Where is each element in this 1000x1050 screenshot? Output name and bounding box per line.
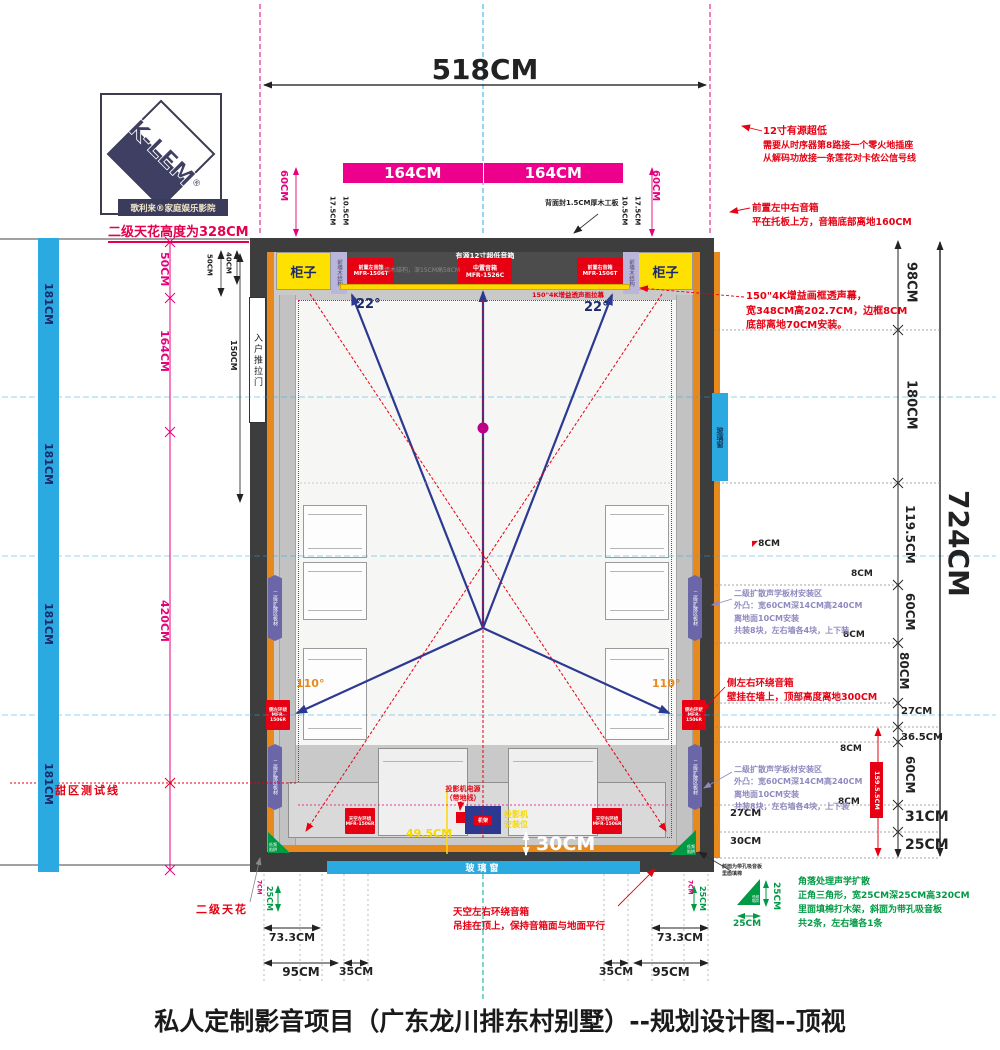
dim-95-right: 95CM xyxy=(634,966,708,979)
diffuser-lower-line-4: 共装8块，左右墙各4块，上下装 xyxy=(734,801,862,813)
dim-518: 518CM xyxy=(380,55,590,86)
speaker-center-model: MFR-1526C xyxy=(458,272,512,279)
projector-power-line-1: 投影机电源 xyxy=(428,785,498,794)
front-speaker-annotation-line-2: 平在托板上方，音箱底部离地160CM xyxy=(752,216,912,230)
ceiling-height-note: 二级天花高度为328CM xyxy=(108,226,249,243)
projector-power-note: 投影机电源 （带地线） xyxy=(428,785,498,803)
side-unit-left-3 xyxy=(303,648,367,740)
speaker-center-name: 中置音箱 xyxy=(458,263,512,272)
speaker-side-left-model: MFR-1506R xyxy=(266,713,290,723)
dim-60-b: 60CM xyxy=(903,756,916,793)
side-surround-line-1: 侧左右环绕音箱 xyxy=(727,677,877,691)
dim-27: 27CM xyxy=(901,706,932,717)
diffuser-strip-left-lower: 二级扩散区板材 xyxy=(268,744,282,810)
dim-80: 80CM xyxy=(897,652,910,689)
window-right-label: 玻璃窗 xyxy=(715,427,725,448)
dim-36-5: 36.5CM xyxy=(901,732,943,743)
floor-plan-page: 柜子 柜子 前墙木结构 前墙木结构 有源12寸超低音箱 前置左音箱 MFR-15… xyxy=(0,0,1000,1050)
sky-surround-line-2: 吊挂在顶上，保持音箱面与地面平行 xyxy=(453,920,605,934)
ceiling-panel-bar: 164CM 164CM xyxy=(343,163,623,183)
dim-8cm-1: 8CM xyxy=(851,570,873,580)
corner-treatment-annotation: 角落处理声学扩散 正角三角形，宽25CM深25CM高320CM 里面填棉打木架，… xyxy=(798,876,970,932)
bar-segment-label-2: 181CM xyxy=(42,443,54,485)
sky-surround-annotation: 天空左右环绕音箱 吊挂在顶上，保持音箱面与地面平行 xyxy=(453,906,605,935)
dim-7-left: 7CM xyxy=(255,880,262,895)
equipment-rack-tag: 机架 xyxy=(474,816,492,825)
speaker-center: 中置音箱 MFR-1526C xyxy=(458,258,512,283)
subwoofer-annotation-line-3: 从解码功放接一条莲花对卡侬公信号线 xyxy=(763,153,916,167)
entry-door: 入户推拉门 xyxy=(249,297,266,423)
speaker-side-left: 侧左环绕 MFR-1506R xyxy=(266,700,290,730)
speaker-side-right-model: MFR-1506R xyxy=(682,713,706,723)
dim-164-left: 164CM xyxy=(158,330,170,372)
dim-10-5-right: 10.5CM xyxy=(620,196,628,225)
dim-420: 420CM xyxy=(158,600,170,642)
dim-159-5: 159.5.5CM xyxy=(870,762,883,818)
projector-position-note: 投影机 安装位 xyxy=(504,810,528,831)
diffuser-lower-line-3: 离地面10CM安装 xyxy=(734,789,862,801)
angle-22-left: 22° xyxy=(356,298,381,312)
panel-right-label: 164CM xyxy=(484,163,624,183)
dim-30-white: 30CM xyxy=(536,834,595,855)
diffuser-strip-right-upper: 二级扩散区板材 xyxy=(688,575,702,641)
equipment-rack: 机架 xyxy=(465,806,501,834)
projector-power-line-2: （带地线） xyxy=(428,794,498,803)
dim-8cm-3: 8CM xyxy=(840,745,862,755)
side-unit-right-2 xyxy=(605,562,669,620)
corner-line-1: 角落处理声学扩散 xyxy=(798,876,970,890)
dim-8cm-5: ◤8CM xyxy=(752,540,780,550)
bar-segment-label-1: 181CM xyxy=(42,283,54,325)
diffuser-strip-right-lower: 二级扩散区板材 xyxy=(688,744,702,810)
screen-bar xyxy=(340,284,630,290)
subwoofer-annotation-line-1: 12寸有源超低 xyxy=(763,124,916,140)
angle-110-right: 110° xyxy=(652,678,680,690)
ceiling2-label: 二级天花 xyxy=(196,904,248,916)
dim-17-5-right: 17.5CM xyxy=(633,196,641,225)
diffuser-annotation-lower: 二级扩散声学板材安装区 外凸：宽60CM深14CM高240CM 离地面10CM安… xyxy=(734,764,862,814)
sweet-zone-label: 甜区测试线 xyxy=(55,785,120,797)
brand-logo: K-LEM ® xyxy=(100,93,222,215)
side-unit-right-3 xyxy=(605,648,669,740)
dim-119-5: 119.5CM xyxy=(903,505,916,564)
bass-trap-left-label: 低频陷阱 xyxy=(269,843,277,852)
diffuser-lower-line-1: 二级扩散声学板材安装区 xyxy=(734,764,862,776)
corner-line-4: 共2条，左右墙各1条 xyxy=(798,918,970,932)
screen-annotation-line-2: 宽348CM高202.7CM，边框8CM xyxy=(746,305,907,320)
dim-25: 25CM xyxy=(905,838,949,853)
diffuser-lower-line-2: 外凸：宽60CM深14CM高240CM xyxy=(734,776,862,788)
speaker-side-right: 侧右环绕 MFR-1506R xyxy=(682,700,706,730)
wall-liner-outer-right xyxy=(714,252,720,858)
dim-25-corner-h: 25CM xyxy=(733,920,761,930)
diffuser-upper-line-3: 离地面10CM安装 xyxy=(734,613,862,625)
bar-segment-label-3: 181CM xyxy=(42,603,54,645)
projector-power-outlet xyxy=(456,812,465,823)
window-right: 玻璃窗 xyxy=(712,393,728,481)
dim-25-bottom-right: 25CM xyxy=(697,886,706,911)
dim-35-right: 35CM xyxy=(592,966,640,978)
dim-73-3-right: 73.3CM xyxy=(650,932,710,944)
page-title: 私人定制影音项目（广东龙川排东村别墅）--规划设计图--顶视 xyxy=(0,1008,1000,1036)
brand-logo-art: K-LEM ® xyxy=(102,95,220,213)
dim-35-left: 35CM xyxy=(332,966,380,978)
brand-badge: 歌利来®家庭娱乐影院 xyxy=(118,199,228,216)
projector-position-line-2: 安装位 xyxy=(504,820,528,830)
subwoofer-annotation-line-2: 需要从时序器第8路接一个零火地插座 xyxy=(763,140,916,154)
screen-annotation: 150"4K增益画框透声幕， 宽348CM高202.7CM，边框8CM 底部离地… xyxy=(746,290,907,334)
speaker-sky-right: 天空右环绕 MFR-1506R xyxy=(592,808,622,834)
dim-50-pink: 50CM xyxy=(158,252,170,286)
side-unit-left-2 xyxy=(303,562,367,620)
dim-60-left: 60CM xyxy=(278,170,289,201)
corner-line-2: 正角三角形，宽25CM深25CM高320CM xyxy=(798,890,970,904)
dim-50-dark: 50CM xyxy=(205,254,213,276)
corner-small-line-1: 斜面为带孔吸音板 xyxy=(722,864,762,871)
bar-segment-label-4: 181CM xyxy=(42,763,54,805)
window-bottom-label: 玻璃窗 xyxy=(465,861,501,874)
corner-small-note: 斜面为带孔吸音板 里面填棉 xyxy=(722,864,762,877)
side-surround-line-2: 壁挂在墙上，顶部高度离地300CM xyxy=(727,691,877,705)
wall-liner-bottom xyxy=(267,845,700,852)
dim-180: 180CM xyxy=(903,380,917,430)
diffuser-strip-left-upper: 二级扩散区板材 xyxy=(268,575,282,641)
side-unit-right-1 xyxy=(605,505,669,558)
dim-31: 31CM xyxy=(905,810,949,825)
screen-annotation-line-1: 150"4K增益画框透声幕， xyxy=(746,290,907,305)
speaker-front-right-name: 前置右音箱 xyxy=(577,264,623,271)
corner-line-3: 里面填棉打木架，斜面为带孔吸音板 xyxy=(798,904,970,918)
side-unit-left-1 xyxy=(303,505,367,558)
front-speaker-annotation-line-1: 前置左中右音箱 xyxy=(752,202,912,216)
diffuser-upper-line-1: 二级扩散声学板材安装区 xyxy=(734,588,862,600)
dim-17-5-left: 17.5CM xyxy=(328,196,336,225)
angle-110-left: 110° xyxy=(296,678,324,690)
diffuser-upper-line-2: 外凸：宽60CM深14CM高240CM xyxy=(734,600,862,612)
dim-30-inner: 30CM xyxy=(730,836,761,847)
speaker-sky-left: 天空左环绕 MFR-1506R xyxy=(345,808,375,834)
window-bottom: 玻璃窗 xyxy=(327,861,640,874)
speaker-front-right-model: MFR-1506T xyxy=(577,271,623,277)
panel-left-label: 164CM xyxy=(343,163,484,183)
corner-detail-triangle: 低频陷阱 xyxy=(737,879,760,905)
dim-60-right: 60CM xyxy=(650,170,661,201)
subwoofer-annotation: 12寸有源超低 需要从时序器第8路接一个零火地插座 从解码功放接一条莲花对卡侬公… xyxy=(763,124,916,167)
cabinet-right: 柜子 xyxy=(638,252,693,290)
dim-25-bottom-left: 25CM xyxy=(264,886,273,911)
screen-note: 150"4K增益透声画拉幕 xyxy=(532,292,604,299)
dim-25-corner-v: 25CM xyxy=(770,882,780,910)
side-surround-annotation: 侧左右环绕音箱 壁挂在墙上，顶部高度离地300CM xyxy=(727,677,877,706)
screen-annotation-line-3: 底部离地70CM安装。 xyxy=(746,319,907,334)
speaker-sky-left-model: MFR-1506R xyxy=(345,822,375,827)
dim-49-5: 49.5CM xyxy=(406,828,452,840)
dim-73-3-left: 73.3CM xyxy=(262,932,322,944)
diffuser-annotation-upper: 二级扩散声学板材安装区 外凸：宽60CM深14CM高240CM 离地面10CM安… xyxy=(734,588,862,638)
dim-150: 150CM xyxy=(228,340,237,371)
diffuser-upper-line-4: 共装8块，左右墙各4块，上下装 xyxy=(734,625,862,637)
cabinet-left: 柜子 xyxy=(276,252,331,290)
sky-surround-line-1: 天空左右环绕音箱 xyxy=(453,906,605,920)
back-panel-note: 背面封1.5CM厚木工板 xyxy=(545,200,619,208)
bass-trap-right-label: 低频陷阱 xyxy=(687,845,695,854)
dim-724: 724CM xyxy=(942,490,973,597)
speaker-front-right: 前置右音箱 MFR-1506T xyxy=(577,258,623,283)
entry-door-label: 入户推拉门 xyxy=(251,333,264,388)
cabinet-left-label: 柜子 xyxy=(290,262,316,281)
dim-95-left: 95CM xyxy=(264,966,338,979)
dim-10-5-left: 10.5CM xyxy=(341,196,349,225)
angle-22-right: 22° xyxy=(584,301,609,315)
corner-detail-label: 低频陷阱 xyxy=(752,896,759,904)
speaker-sky-right-model: MFR-1506R xyxy=(592,822,622,827)
stage-wood-note: 前墙木结构，深15CM高58CM xyxy=(378,268,460,275)
front-speaker-annotation: 前置左中右音箱 平在托板上方，音箱底部离地160CM xyxy=(752,202,912,231)
dim-7-right: 7CM xyxy=(686,880,693,895)
dim-40-dark: 40CM xyxy=(224,252,232,274)
brand-badge-label: 歌利来®家庭娱乐影院 xyxy=(130,202,215,214)
dim-60-a: 60CM xyxy=(903,593,916,630)
corner-small-line-2: 里面填棉 xyxy=(722,871,762,878)
cabinet-right-label: 柜子 xyxy=(652,262,678,281)
projector-position-line-1: 投影机 xyxy=(504,810,528,820)
